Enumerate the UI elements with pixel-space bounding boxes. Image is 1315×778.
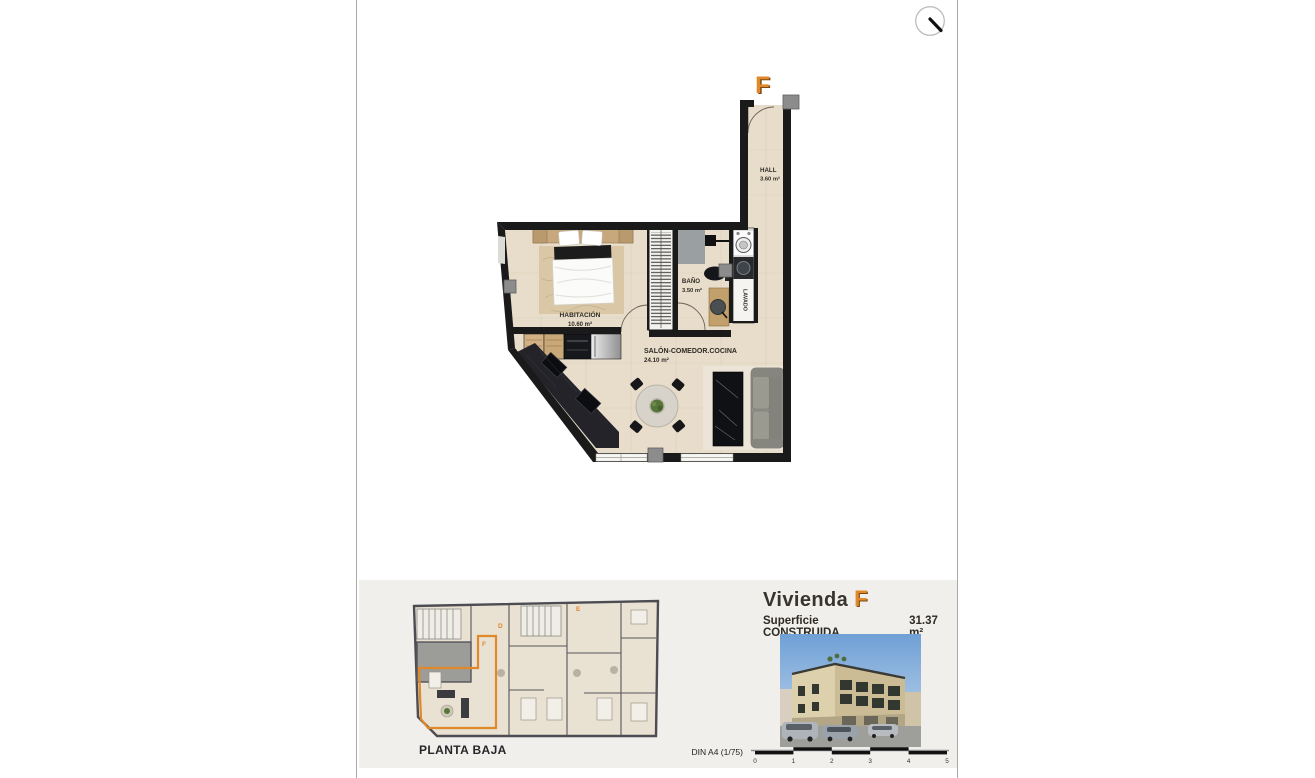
summary-title: Vivienda F (763, 586, 953, 612)
bathroom-label: BAÑO (682, 278, 700, 285)
scale-bar-ticks: 0 1 2 3 4 5 (753, 758, 949, 765)
svg-text:D: D (498, 623, 503, 630)
shower-head (705, 235, 716, 246)
site-plan: D E F (409, 598, 661, 740)
plan-sheet-page: F F (356, 0, 958, 778)
living-area: 24.10 m² (644, 357, 669, 364)
floor-plan: F F (481, 60, 821, 480)
sheet-row: DIN A4 (1/75) 0 1 2 3 (699, 745, 955, 767)
pillow (582, 230, 603, 245)
bedroom-area: 10.60 m² (568, 321, 592, 328)
svg-text:E: E (576, 606, 581, 613)
bathroom-area: 3.50 m² (682, 287, 702, 294)
summary-title-prefix: Vivienda (763, 589, 848, 611)
svg-text:F: F (755, 72, 770, 99)
svg-text:3: 3 (868, 758, 872, 765)
document-canvas: F F (0, 0, 1315, 778)
summary-unit-letter: F (854, 586, 868, 611)
oven-microwave (564, 334, 591, 359)
cursor-needle (930, 19, 941, 31)
table-plant (651, 400, 664, 413)
svg-text:2: 2 (830, 758, 834, 765)
plan-unit-letter: F F (755, 72, 771, 100)
dining-set (629, 377, 686, 434)
sheet-format-label: DIN A4 (1/75) (692, 747, 744, 757)
bedroom-furniture (533, 228, 633, 314)
site-plan-caption: PLANTA BAJA (419, 743, 507, 757)
sofa (751, 368, 784, 448)
svg-text:5: 5 (945, 758, 949, 765)
hall-label: HALL (760, 167, 777, 174)
bedroom-window (498, 236, 505, 264)
laundry-label: LAVADO (742, 289, 748, 311)
hall-area: 3.60 m² (760, 176, 780, 183)
svg-text:0: 0 (753, 758, 757, 765)
footer-panel: D E F PLANTA BAJA Vivienda F Superficie … (359, 580, 957, 768)
bedroom-label: HABITACIÓN (560, 310, 601, 319)
building-photo (780, 634, 921, 747)
wardrobe (649, 228, 673, 330)
svg-text:1: 1 (792, 758, 796, 765)
pillow (558, 230, 579, 246)
vanity-sink (711, 300, 726, 315)
zoom-cursor-icon[interactable] (914, 5, 946, 37)
living-label: SALÓN-COMEDOR.COCINA (644, 346, 737, 355)
scale-bar: 0 1 2 3 4 5 (751, 745, 955, 767)
svg-text:F: F (482, 641, 486, 648)
coffee-table (713, 372, 743, 446)
svg-text:4: 4 (907, 758, 911, 765)
summary-block: Vivienda F Superficie CONSTRUIDA 31.37 m… (763, 586, 953, 639)
shower (678, 228, 705, 264)
site-plan-patio (417, 642, 471, 682)
